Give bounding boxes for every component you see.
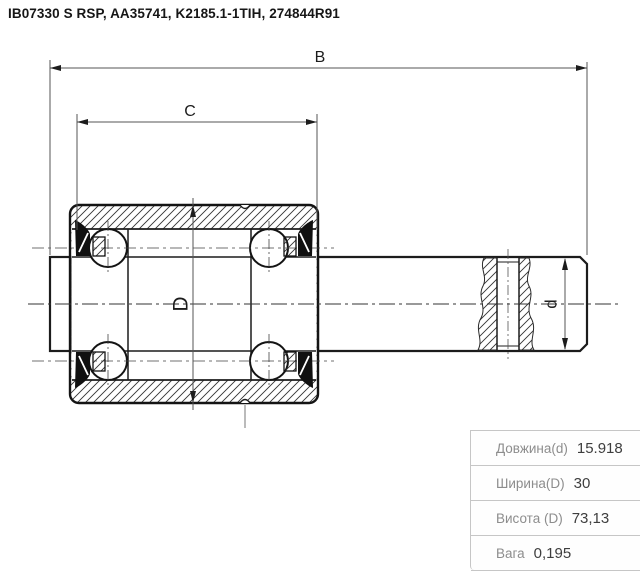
spec-row-length: Довжина(d) 15.918 [471, 431, 640, 466]
spec-label: Довжина(d) [496, 441, 568, 456]
spec-row-width: Ширина(D) 30 [471, 466, 640, 501]
spec-row-weight: Вага 0,195 [471, 536, 640, 571]
spec-value: 73,13 [572, 510, 610, 527]
dimension-c-label: C [184, 103, 196, 120]
spec-label: Ширина(D) [496, 476, 565, 491]
dimension-b-label: B [315, 49, 326, 66]
spec-value: 15.918 [577, 440, 623, 457]
spec-label: Висота (D) [496, 511, 563, 526]
spec-row-height: Висота (D) 73,13 [471, 501, 640, 536]
spec-table: Довжина(d) 15.918 Ширина(D) 30 Висота (D… [470, 430, 640, 570]
dimension-d-stud-label: d [542, 299, 561, 308]
spec-value: 30 [574, 475, 591, 492]
spec-label: Вага [496, 546, 525, 561]
dimension-d-outer-label: D [170, 296, 193, 311]
spec-value: 0,195 [534, 545, 572, 562]
